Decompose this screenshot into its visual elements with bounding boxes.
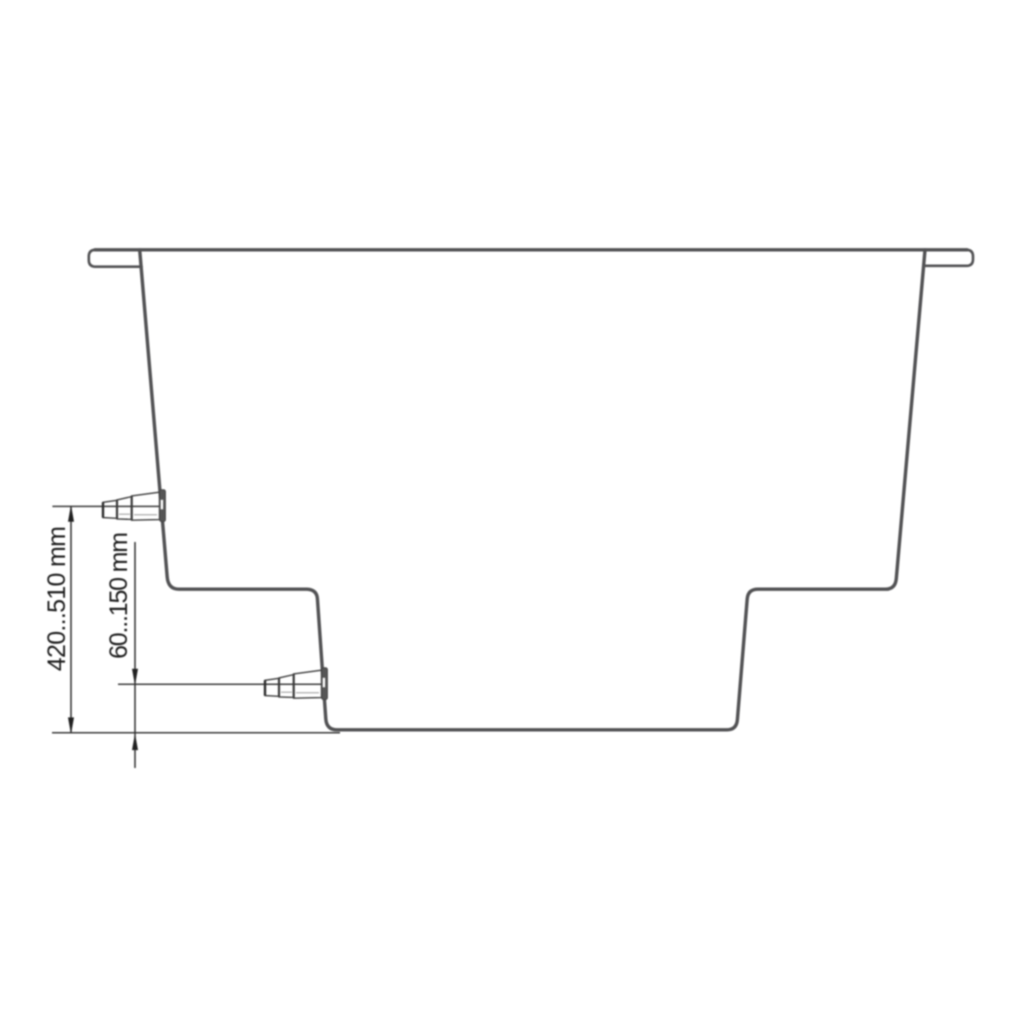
svg-text:60...150 mm: 60...150 mm bbox=[105, 533, 133, 659]
svg-text:420...510 mm: 420...510 mm bbox=[43, 527, 71, 671]
